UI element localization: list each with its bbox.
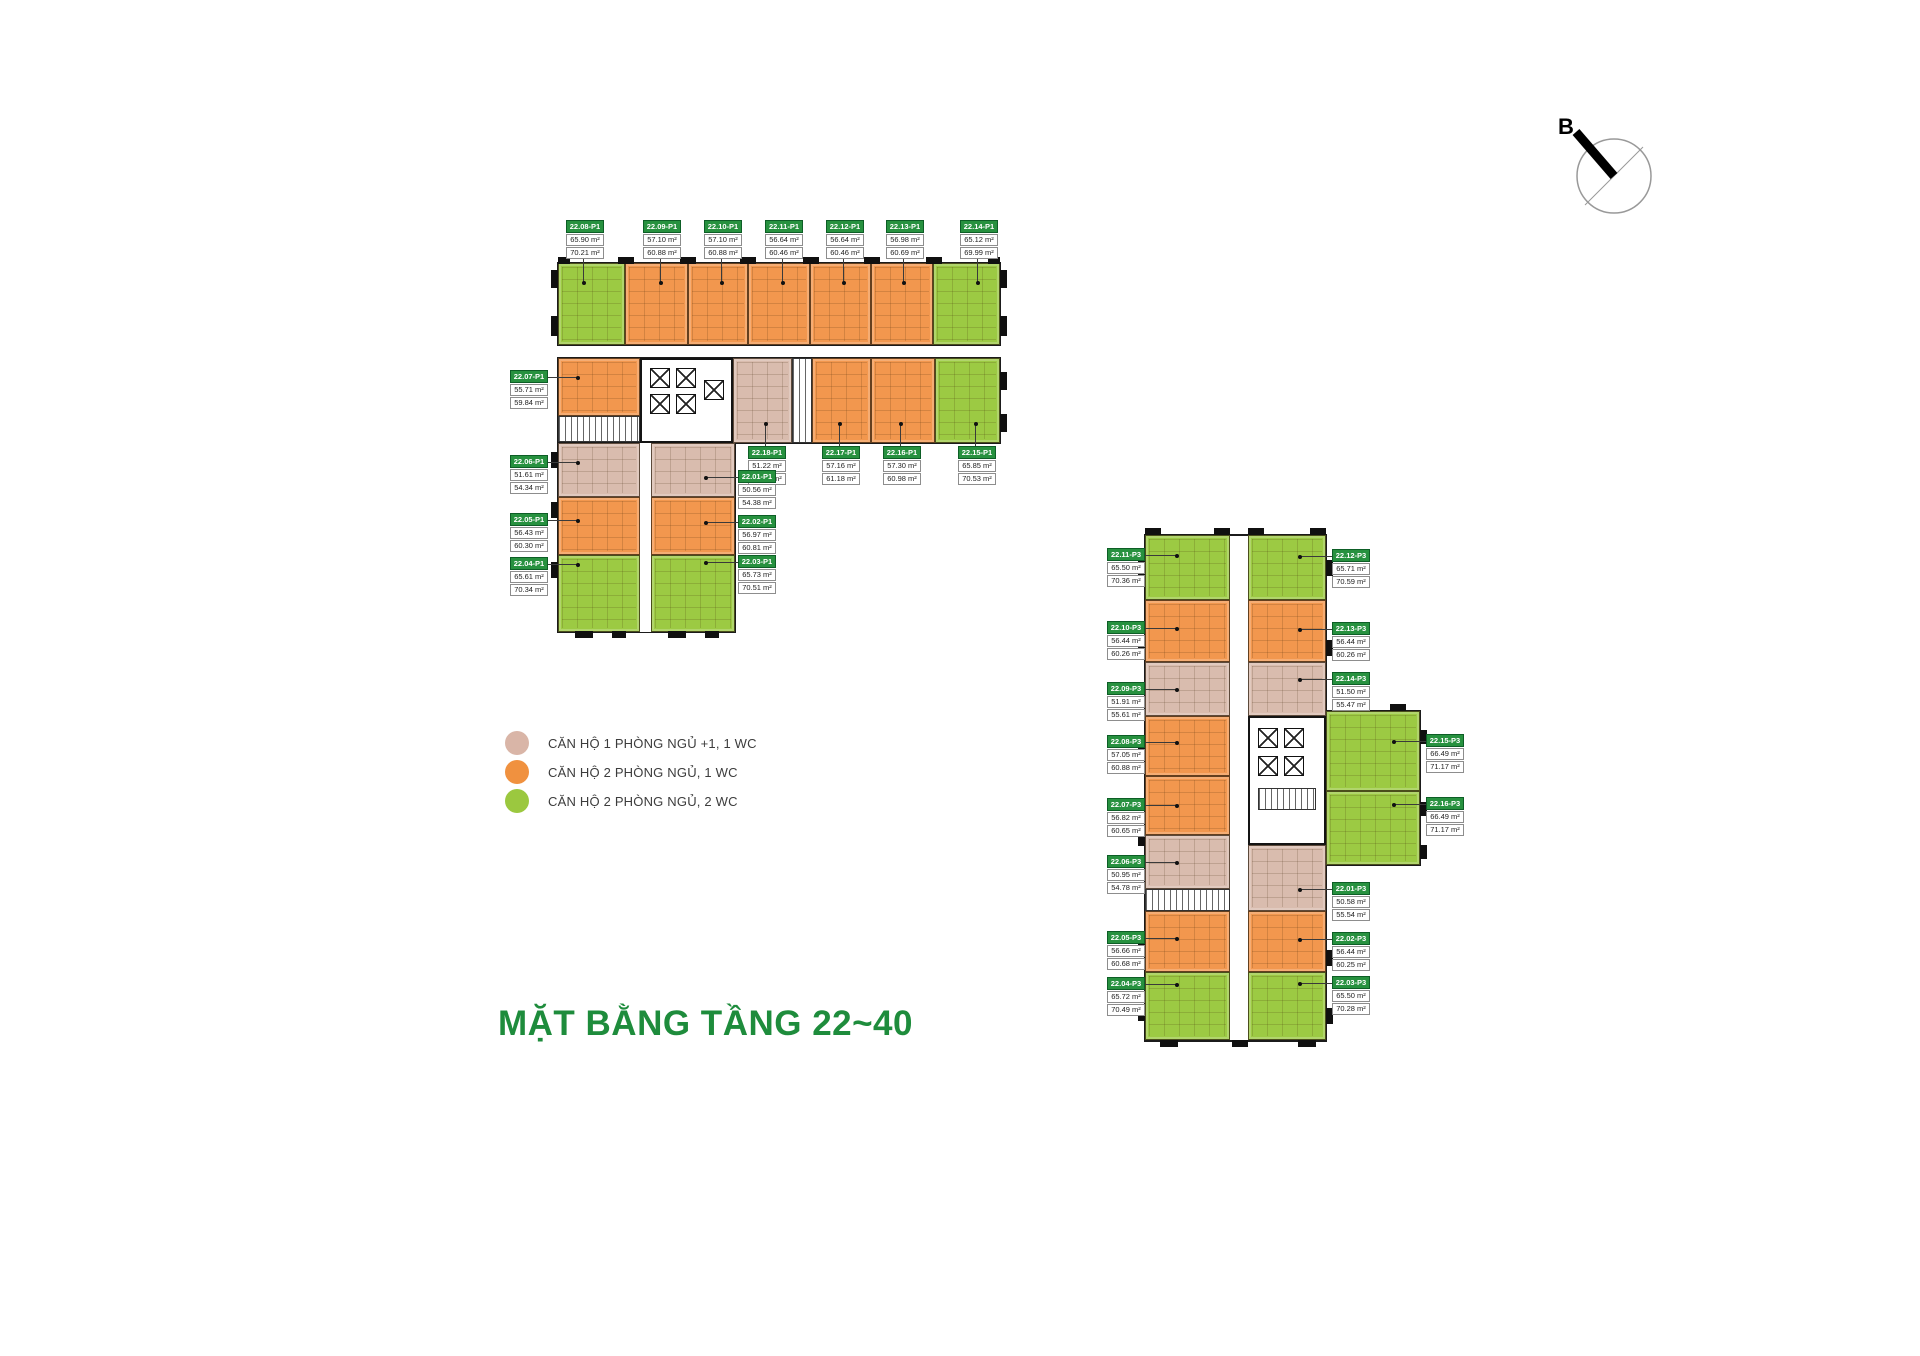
balcony-tick: [926, 257, 942, 264]
label-22-04-p1: 22.04-P1 65.61 m² 70.34 m²: [510, 557, 548, 596]
unit-22-01-p3: [1248, 845, 1326, 911]
unit-area1: 50.58 m²: [1332, 896, 1370, 908]
elevator-shaft: [676, 394, 696, 414]
unit-code: 22.15-P1: [958, 446, 996, 459]
unit-22-16-p3: [1326, 791, 1420, 865]
label-22-16-p1: 22.16-P1 57.30 m² 60.98 m²: [883, 446, 921, 485]
unit-code: 22.10-P3: [1107, 621, 1145, 634]
label-22-15-p1: 22.15-P1 65.85 m² 70.53 m²: [958, 446, 996, 485]
leader-line: [1145, 628, 1177, 629]
balcony-tick: [1000, 372, 1007, 390]
leader-line: [706, 522, 738, 523]
unit-area2: 55.61 m²: [1107, 709, 1145, 721]
elevator-shaft: [676, 368, 696, 388]
label-22-05-p1: 22.05-P1 56.43 m² 60.30 m²: [510, 513, 548, 552]
label-22-12-p3: 22.12-P3 65.71 m² 70.59 m²: [1332, 549, 1370, 588]
floorplan-canvas: 22.08-P1 65.90 m² 70.21 m² 22.09-P1 57.1…: [0, 0, 1920, 1356]
unit-area2: 70.36 m²: [1107, 575, 1145, 587]
leader-line: [1145, 938, 1177, 939]
label-22-14-p1: 22.14-P1 65.12 m² 69.99 m²: [960, 220, 998, 259]
label-22-09-p3: 22.09-P3 51.91 m² 55.61 m²: [1107, 682, 1145, 721]
page-title: MẶT BẰNG TẦNG 22~40: [498, 1004, 913, 1044]
unit-area1: 55.71 m²: [510, 384, 548, 396]
elevator-shaft: [1284, 728, 1304, 748]
elevator-shaft: [1258, 756, 1278, 776]
unit-area2: 60.30 m²: [510, 540, 548, 552]
legend-label: CĂN HỘ 2 PHÒNG NGỦ, 2 WC: [548, 794, 738, 809]
unit-22-03-p1: [651, 555, 735, 632]
balcony-tick: [1000, 414, 1007, 432]
unit-code: 22.07-P3: [1107, 798, 1145, 811]
unit-area1: 56.64 m²: [765, 234, 803, 246]
balcony-tick: [1214, 528, 1230, 535]
unit-22-18-p1: [733, 358, 792, 443]
unit-code: 22.11-P3: [1107, 548, 1145, 561]
balcony-tick: [803, 257, 819, 264]
unit-area2: 70.21 m²: [566, 247, 604, 259]
unit-area2: 60.46 m²: [826, 247, 864, 259]
unit-22-17-p1: [812, 358, 871, 443]
compass-north-label: B: [1558, 114, 1574, 140]
balcony-tick: [864, 257, 880, 264]
label-22-11-p3: 22.11-P3 65.50 m² 70.36 m²: [1107, 548, 1145, 587]
unit-area2: 60.88 m²: [1107, 762, 1145, 774]
balcony-tick: [551, 316, 558, 336]
label-22-07-p3: 22.07-P3 56.82 m² 60.65 m²: [1107, 798, 1145, 837]
unit-code: 22.18-P1: [748, 446, 786, 459]
balcony-tick: [551, 270, 558, 288]
unit-area1: 56.43 m²: [510, 527, 548, 539]
leader-line: [1300, 629, 1332, 630]
unit-area1: 66.49 m²: [1426, 748, 1464, 760]
leader-line: [583, 258, 584, 283]
leader-line: [548, 564, 578, 565]
legend-swatch-2pn1: [505, 760, 529, 784]
unit-22-05-p1: [558, 497, 640, 555]
unit-area1: 65.71 m²: [1332, 563, 1370, 575]
unit-22-02-p3: [1248, 911, 1326, 972]
label-22-15-p3: 22.15-P3 66.49 m² 71.17 m²: [1426, 734, 1464, 773]
leader-line: [900, 424, 901, 446]
unit-area1: 65.72 m²: [1107, 991, 1145, 1003]
unit-area2: 60.25 m²: [1332, 959, 1370, 971]
label-22-06-p1: 22.06-P1 51.61 m² 54.34 m²: [510, 455, 548, 494]
stairwell-p1: [558, 416, 640, 442]
elevator-core-p1: [640, 358, 733, 443]
legend-swatch-2pn2: [505, 789, 529, 813]
unit-22-13-p3: [1248, 600, 1326, 662]
unit-area2: 61.18 m²: [822, 473, 860, 485]
unit-area1: 57.30 m²: [883, 460, 921, 472]
balcony-tick: [551, 452, 558, 468]
leader-line: [1145, 862, 1177, 863]
leader-line: [1394, 741, 1426, 742]
unit-code: 22.12-P3: [1332, 549, 1370, 562]
unit-code: 22.04-P1: [510, 557, 548, 570]
elevator-shaft: [650, 368, 670, 388]
unit-area2: 60.81 m²: [738, 542, 776, 554]
balcony-tick: [740, 257, 756, 264]
unit-code: 22.07-P1: [510, 370, 548, 383]
elevator-shaft: [704, 380, 724, 400]
corridor-p1: [640, 443, 651, 632]
unit-area2: 69.99 m²: [960, 247, 998, 259]
leader-line: [843, 258, 844, 283]
leader-line: [1145, 984, 1177, 985]
label-22-04-p3: 22.04-P3 65.72 m² 70.49 m²: [1107, 977, 1145, 1016]
balcony-tick: [1310, 528, 1326, 535]
balcony-tick: [1298, 1040, 1316, 1047]
unit-area2: 60.88 m²: [643, 247, 681, 259]
label-22-07-p1: 22.07-P1 55.71 m² 59.84 m²: [510, 370, 548, 409]
unit-code: 22.01-P3: [1332, 882, 1370, 895]
unit-area1: 66.49 m²: [1426, 811, 1464, 823]
unit-area2: 60.88 m²: [704, 247, 742, 259]
unit-area1: 56.44 m²: [1332, 636, 1370, 648]
legend-item-1pn: CĂN HỘ 1 PHÒNG NGỦ +1, 1 WC: [505, 731, 757, 755]
stairwell-p3: [1145, 889, 1230, 911]
unit-code: 22.09-P1: [643, 220, 681, 233]
legend: CĂN HỘ 1 PHÒNG NGỦ +1, 1 WC CĂN HỘ 2 PHÒ…: [505, 731, 757, 818]
legend-label: CĂN HỘ 1 PHÒNG NGỦ +1, 1 WC: [548, 736, 757, 751]
unit-area1: 65.61 m²: [510, 571, 548, 583]
unit-area2: 60.26 m²: [1332, 649, 1370, 661]
unit-code: 22.02-P1: [738, 515, 776, 528]
balcony-tick: [680, 257, 696, 264]
elevator-shaft: [1258, 728, 1278, 748]
unit-area1: 56.82 m²: [1107, 812, 1145, 824]
unit-area1: 56.66 m²: [1107, 945, 1145, 957]
label-22-06-p3: 22.06-P3 50.95 m² 54.78 m²: [1107, 855, 1145, 894]
unit-area2: 70.59 m²: [1332, 576, 1370, 588]
unit-code: 22.04-P3: [1107, 977, 1145, 990]
balcony-tick: [1232, 1040, 1248, 1047]
unit-22-05-p3: [1145, 911, 1230, 972]
unit-area1: 56.44 m²: [1332, 946, 1370, 958]
unit-22-11-p3: [1145, 535, 1230, 600]
unit-code: 22.09-P3: [1107, 682, 1145, 695]
label-22-14-p3: 22.14-P3 51.50 m² 55.47 m²: [1332, 672, 1370, 711]
balcony-tick: [551, 502, 558, 518]
unit-area2: 70.28 m²: [1332, 1003, 1370, 1015]
unit-code: 22.14-P3: [1332, 672, 1370, 685]
unit-code: 22.06-P1: [510, 455, 548, 468]
unit-area1: 56.44 m²: [1107, 635, 1145, 647]
unit-22-07-p1: [558, 358, 640, 416]
unit-22-14-p1: [933, 263, 1000, 345]
unit-area1: 65.50 m²: [1332, 990, 1370, 1002]
legend-item-2pn1: CĂN HỘ 2 PHÒNG NGỦ, 1 WC: [505, 760, 757, 784]
balcony-tick: [575, 631, 593, 638]
unit-area1: 57.16 m²: [822, 460, 860, 472]
leader-line: [1145, 742, 1177, 743]
unit-area1: 51.91 m²: [1107, 696, 1145, 708]
elevator-shaft: [650, 394, 670, 414]
label-22-01-p3: 22.01-P3 50.58 m² 55.54 m²: [1332, 882, 1370, 921]
label-22-10-p1: 22.10-P1 57.10 m² 60.88 m²: [704, 220, 742, 259]
unit-area1: 57.10 m²: [643, 234, 681, 246]
unit-22-12-p3: [1248, 535, 1326, 600]
unit-code: 22.02-P3: [1332, 932, 1370, 945]
unit-area2: 70.49 m²: [1107, 1004, 1145, 1016]
unit-area2: 60.98 m²: [883, 473, 921, 485]
unit-area2: 70.34 m²: [510, 584, 548, 596]
balcony-tick: [1390, 704, 1406, 711]
unit-code: 22.15-P3: [1426, 734, 1464, 747]
unit-code: 22.03-P3: [1332, 976, 1370, 989]
unit-area1: 50.95 m²: [1107, 869, 1145, 881]
balcony-tick: [1248, 528, 1264, 535]
label-22-13-p1: 22.13-P1 56.98 m² 60.69 m²: [886, 220, 924, 259]
label-22-11-p1: 22.11-P1 56.64 m² 60.46 m²: [765, 220, 803, 259]
unit-code: 22.11-P1: [765, 220, 803, 233]
unit-code: 22.06-P3: [1107, 855, 1145, 868]
elevator-shaft: [1284, 756, 1304, 776]
stair-flight: [1258, 788, 1316, 810]
leader-line: [1145, 555, 1177, 556]
compass: B: [1552, 112, 1662, 222]
label-22-09-p1: 22.09-P1 57.10 m² 60.88 m²: [643, 220, 681, 259]
leader-line: [975, 424, 976, 446]
unit-22-01-p1: [651, 443, 735, 497]
unit-area2: 54.78 m²: [1107, 882, 1145, 894]
leader-line: [1300, 679, 1332, 680]
leader-line: [839, 424, 840, 446]
leader-line: [1145, 689, 1177, 690]
unit-area1: 65.50 m²: [1107, 562, 1145, 574]
label-22-08-p1: 22.08-P1 65.90 m² 70.21 m²: [566, 220, 604, 259]
unit-22-11-p1: [748, 263, 810, 345]
leader-line: [765, 424, 766, 446]
unit-area1: 56.64 m²: [826, 234, 864, 246]
label-22-10-p3: 22.10-P3 56.44 m² 60.26 m²: [1107, 621, 1145, 660]
legend-swatch-1pn: [505, 731, 529, 755]
balcony-tick: [1420, 845, 1427, 859]
unit-code: 22.16-P1: [883, 446, 921, 459]
label-22-02-p3: 22.02-P3 56.44 m² 60.25 m²: [1332, 932, 1370, 971]
unit-area2: 70.53 m²: [958, 473, 996, 485]
unit-22-14-p3: [1248, 662, 1326, 716]
unit-code: 22.13-P3: [1332, 622, 1370, 635]
unit-area2: 60.26 m²: [1107, 648, 1145, 660]
unit-area2: 70.51 m²: [738, 582, 776, 594]
unit-22-09-p1: [625, 263, 688, 345]
unit-area2: 60.69 m²: [886, 247, 924, 259]
balcony-tick: [1000, 270, 1007, 288]
unit-area2: 55.54 m²: [1332, 909, 1370, 921]
unit-code: 22.08-P3: [1107, 735, 1145, 748]
unit-code: 22.13-P1: [886, 220, 924, 233]
leader-line: [706, 477, 738, 478]
unit-area2: 60.68 m²: [1107, 958, 1145, 970]
leader-line: [1394, 804, 1426, 805]
balcony-tick: [612, 631, 626, 638]
leader-line: [1145, 805, 1177, 806]
leader-line: [548, 462, 578, 463]
label-22-16-p3: 22.16-P3 66.49 m² 71.17 m²: [1426, 797, 1464, 836]
unit-22-06-p1: [558, 443, 640, 497]
unit-22-15-p1: [935, 358, 1000, 443]
unit-area2: 59.84 m²: [510, 397, 548, 409]
unit-code: 22.17-P1: [822, 446, 860, 459]
unit-area2: 71.17 m²: [1426, 824, 1464, 836]
label-22-01-p1: 22.01-P1 50.56 m² 54.38 m²: [738, 470, 776, 509]
leader-line: [1300, 983, 1332, 984]
balcony-tick: [668, 631, 686, 638]
label-22-05-p3: 22.05-P3 56.66 m² 60.68 m²: [1107, 931, 1145, 970]
unit-code: 22.10-P1: [704, 220, 742, 233]
leader-line: [548, 520, 578, 521]
unit-22-13-p1: [871, 263, 933, 345]
legend-label: CĂN HỘ 2 PHÒNG NGỦ, 1 WC: [548, 765, 738, 780]
leader-line: [721, 258, 722, 283]
unit-22-12-p1: [810, 263, 871, 345]
unit-area1: 57.05 m²: [1107, 749, 1145, 761]
unit-area1: 65.90 m²: [566, 234, 604, 246]
leader-line: [1300, 939, 1332, 940]
unit-area2: 55.47 m²: [1332, 699, 1370, 711]
unit-code: 22.01-P1: [738, 470, 776, 483]
label-22-12-p1: 22.12-P1 56.64 m² 60.46 m²: [826, 220, 864, 259]
leader-line: [782, 258, 783, 283]
unit-22-16-p1: [871, 358, 935, 443]
unit-area1: 57.10 m²: [704, 234, 742, 246]
label-22-02-p1: 22.02-P1 56.97 m² 60.81 m²: [738, 515, 776, 554]
unit-22-10-p3: [1145, 600, 1230, 662]
unit-area2: 54.34 m²: [510, 482, 548, 494]
unit-area1: 65.85 m²: [958, 460, 996, 472]
balcony-tick: [1000, 316, 1007, 336]
leader-line: [548, 377, 578, 378]
unit-code: 22.14-P1: [960, 220, 998, 233]
label-22-03-p3: 22.03-P3 65.50 m² 70.28 m²: [1332, 976, 1370, 1015]
unit-22-10-p1: [688, 263, 748, 345]
balcony-tick: [1160, 1040, 1178, 1047]
unit-area2: 54.38 m²: [738, 497, 776, 509]
unit-area2: 71.17 m²: [1426, 761, 1464, 773]
unit-area1: 65.73 m²: [738, 569, 776, 581]
unit-22-08-p3: [1145, 716, 1230, 776]
leader-line: [706, 562, 738, 563]
unit-area1: 50.56 m²: [738, 484, 776, 496]
balcony-tick: [705, 631, 719, 638]
leader-line: [1300, 889, 1332, 890]
elevator-core-p3: [1248, 716, 1326, 845]
unit-code: 22.05-P3: [1107, 931, 1145, 944]
label-22-03-p1: 22.03-P1 65.73 m² 70.51 m²: [738, 555, 776, 594]
label-22-08-p3: 22.08-P3 57.05 m² 60.88 m²: [1107, 735, 1145, 774]
unit-code: 22.03-P1: [738, 555, 776, 568]
unit-area1: 65.12 m²: [960, 234, 998, 246]
unit-code: 22.08-P1: [566, 220, 604, 233]
leader-line: [903, 258, 904, 283]
leader-line: [660, 258, 661, 283]
unit-code: 22.16-P3: [1426, 797, 1464, 810]
unit-area1: 51.61 m²: [510, 469, 548, 481]
unit-area1: 56.97 m²: [738, 529, 776, 541]
leader-line: [977, 258, 978, 283]
balcony-tick: [1145, 528, 1161, 535]
leader-line: [1300, 556, 1332, 557]
unit-22-02-p1: [651, 497, 735, 555]
balcony-tick: [618, 257, 634, 264]
unit-22-08-p1: [558, 263, 625, 345]
legend-item-2pn2: CĂN HỘ 2 PHÒNG NGỦ, 2 WC: [505, 789, 757, 813]
unit-22-15-p3: [1326, 711, 1420, 791]
unit-area2: 60.46 m²: [765, 247, 803, 259]
label-22-13-p3: 22.13-P3 56.44 m² 60.26 m²: [1332, 622, 1370, 661]
label-22-17-p1: 22.17-P1 57.16 m² 61.18 m²: [822, 446, 860, 485]
unit-code: 22.05-P1: [510, 513, 548, 526]
unit-area1: 56.98 m²: [886, 234, 924, 246]
unit-code: 22.12-P1: [826, 220, 864, 233]
unit-area1: 51.50 m²: [1332, 686, 1370, 698]
unit-22-04-p1: [558, 555, 640, 632]
unit-22-04-p3: [1145, 972, 1230, 1040]
unit-area2: 60.65 m²: [1107, 825, 1145, 837]
stair-shaft-p1: [792, 358, 812, 443]
